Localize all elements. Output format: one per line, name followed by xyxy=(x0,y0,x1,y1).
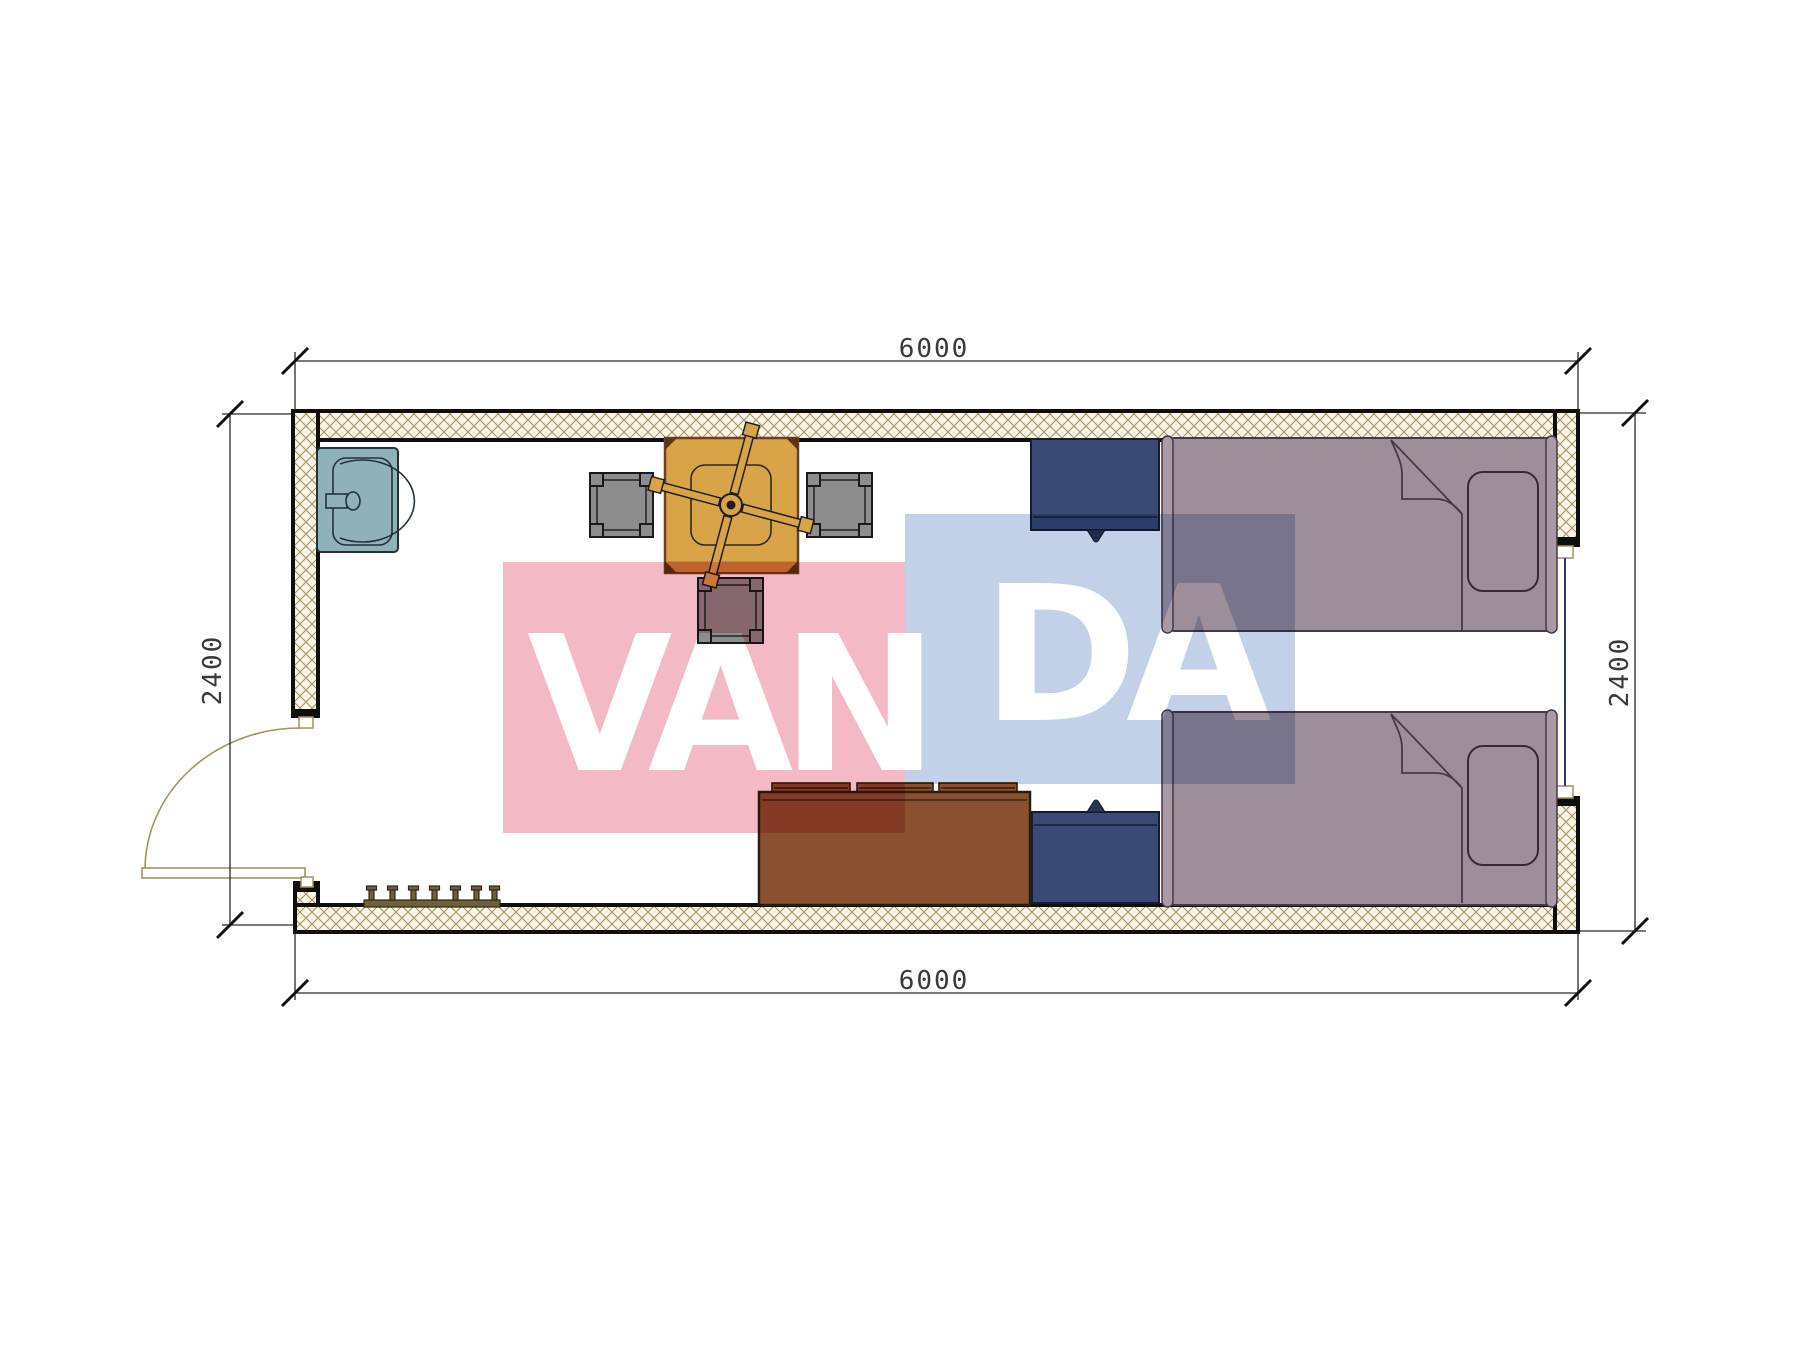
sink-faucet xyxy=(326,494,347,508)
table-edge-shadow xyxy=(667,561,796,571)
door-leaf xyxy=(142,868,305,878)
wall-right-lower xyxy=(1555,798,1578,932)
door-swing-arc xyxy=(145,728,300,870)
bed-bottom-pillow xyxy=(1468,746,1538,865)
nightstand-top-knob xyxy=(1087,530,1105,542)
window-frame-bottom xyxy=(1556,786,1573,798)
dimension-label-top: 6000 xyxy=(899,334,970,364)
bed-top-pillow xyxy=(1468,472,1538,591)
bed-top xyxy=(1162,436,1557,633)
wall-left xyxy=(293,411,318,713)
door xyxy=(142,717,313,887)
floor-plan-drawing: 6000 6000 2400 2400 xyxy=(0,0,1800,1350)
sofa-seat xyxy=(759,792,1030,905)
wall-right-upper xyxy=(1555,411,1578,545)
sink-drain xyxy=(346,492,360,510)
floor-plan-canvas: 6000 6000 2400 2400 VAN DA xyxy=(0,0,1800,1350)
shoe-rack-pegs xyxy=(367,886,500,900)
wall-bottom xyxy=(295,905,1578,932)
door-frame-top xyxy=(299,717,313,728)
sofa xyxy=(759,783,1030,905)
bed-bottom-footboard xyxy=(1546,710,1557,907)
table-with-fan xyxy=(648,422,814,588)
dimension-label-left: 2400 xyxy=(198,635,228,706)
stool-left xyxy=(590,473,653,537)
dimension-label-bottom: 6000 xyxy=(899,966,970,996)
door-hinge-block xyxy=(301,877,313,887)
dimension-label-right: 2400 xyxy=(1605,637,1635,708)
nightstand-top xyxy=(1031,439,1159,542)
stool-right xyxy=(807,473,872,537)
wall-top xyxy=(293,411,1578,440)
shoe-rack xyxy=(364,886,500,907)
nightstand-bottom xyxy=(1032,800,1159,903)
sink xyxy=(317,448,414,552)
bed-top-headboard xyxy=(1162,436,1173,633)
stool-bottom xyxy=(698,578,763,643)
bed-top-footboard xyxy=(1546,436,1557,633)
bed-bottom-headboard xyxy=(1162,710,1173,907)
nightstand-bottom-knob xyxy=(1087,800,1105,812)
window-frame-top xyxy=(1556,546,1573,558)
window xyxy=(1556,546,1573,798)
bed-bottom xyxy=(1162,710,1557,907)
